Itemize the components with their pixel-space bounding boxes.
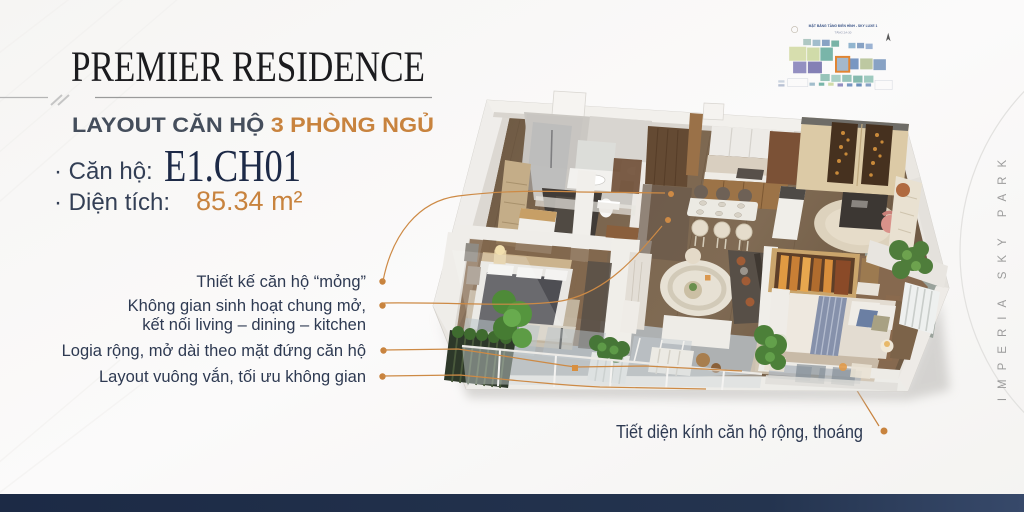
svg-text:PREMIER RESIDENCE: PREMIER RESIDENCE	[71, 44, 425, 91]
svg-text:· Căn hộ:: · Căn hộ:	[54, 158, 153, 185]
svg-text:TẦNG 2A-30: TẦNG 2A-30	[835, 30, 852, 34]
svg-text:Logia rộng, mở dài theo mặt đứ: Logia rộng, mở dài theo mặt đứng căn hộ	[62, 342, 366, 360]
svg-text:Tiết diện kính căn hộ rộng, th: Tiết diện kính căn hộ rộng, thoáng	[616, 421, 863, 442]
svg-text:Layout vuông vắn, tối ưu không: Layout vuông vắn, tối ưu không gian	[99, 367, 366, 386]
svg-text:85.34 m²: 85.34 m²	[196, 186, 303, 216]
svg-text:· Diện tích:: · Diện tích:	[54, 189, 170, 216]
svg-text:LAYOUT CĂN HỘ 3 PHÒNG NGỦ: LAYOUT CĂN HỘ 3 PHÒNG NGỦ	[72, 112, 434, 137]
svg-text:Không gian sinh hoạt chung mở,: Không gian sinh hoạt chung mở,	[128, 297, 366, 315]
svg-text:Thiết kế căn hộ “mỏng”: Thiết kế căn hộ “mỏng”	[196, 273, 366, 291]
svg-text:kết nối living – dining – kitc: kết nối living – dining – kitchen	[142, 316, 366, 334]
svg-text:E1.CH01: E1.CH01	[164, 140, 301, 191]
svg-text:MẶT BẰNG TẦNG ĐIỂN HÌNH - SKY: MẶT BẰNG TẦNG ĐIỂN HÌNH - SKY LUXE 1	[809, 23, 878, 28]
svg-text:IMPERIA SKY PARK: IMPERIA SKY PARK	[997, 151, 1009, 401]
